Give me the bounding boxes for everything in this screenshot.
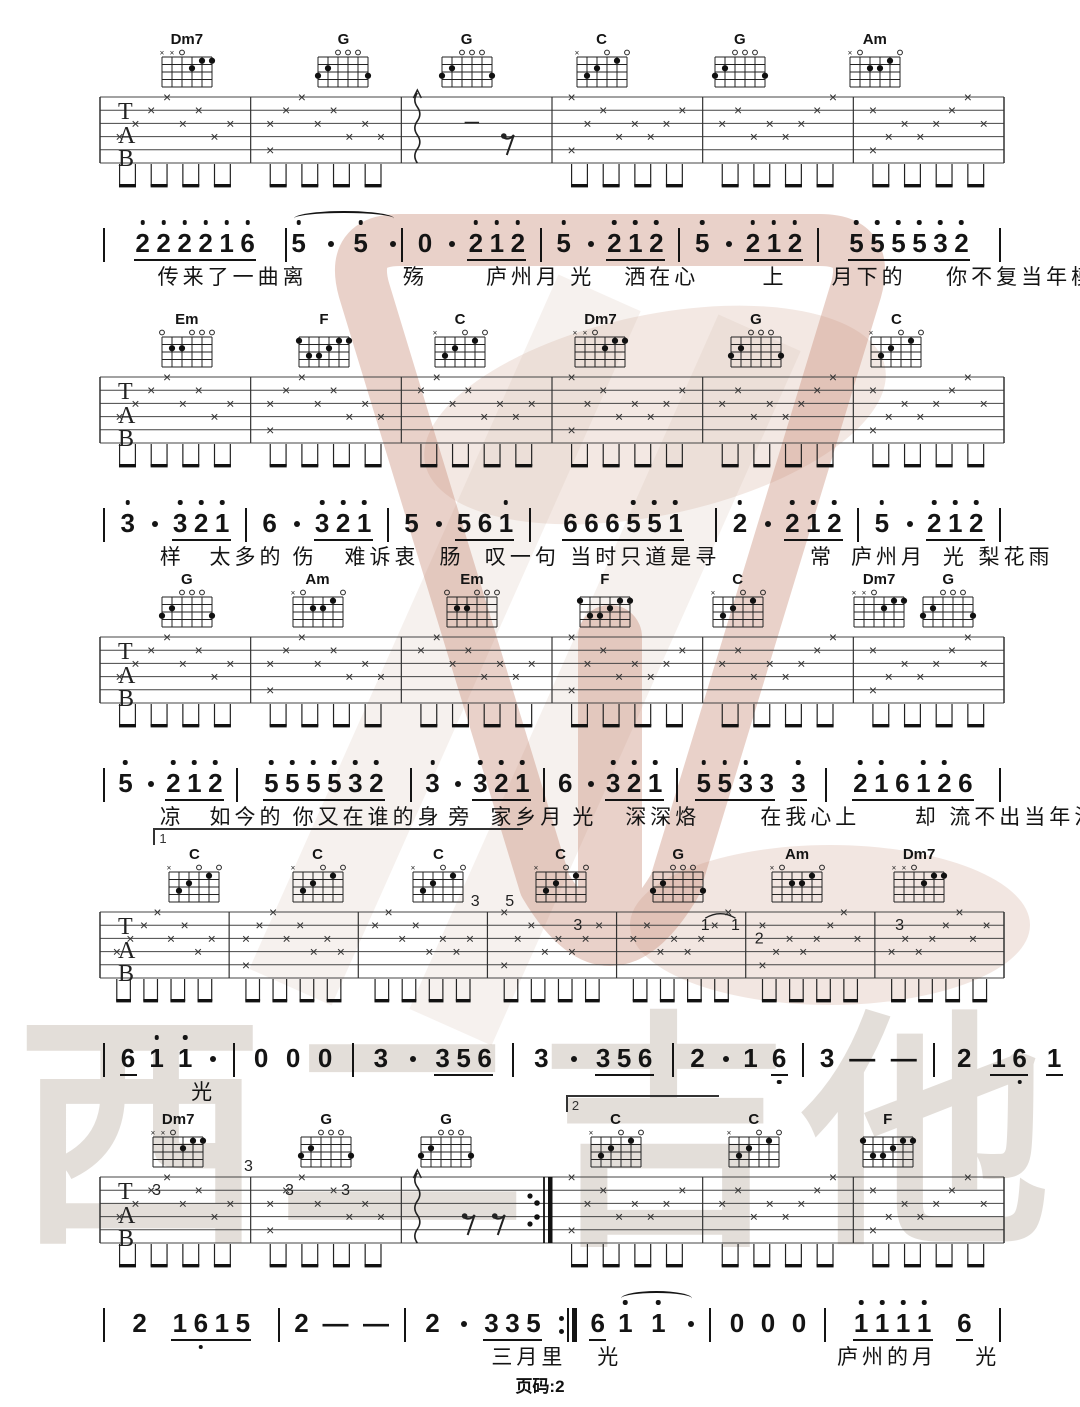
jianpu-line: 52125555323321632155333216126: [100, 754, 1004, 802]
svg-text:×: ×: [480, 409, 488, 425]
beam-group: 1: [1046, 1043, 1063, 1076]
svg-text:×: ×: [928, 930, 936, 946]
svg-text:×: ×: [266, 115, 274, 131]
jianpu-note: 2: [956, 1043, 973, 1073]
svg-text:×: ×: [131, 1195, 139, 1211]
svg-text:×: ×: [964, 89, 972, 105]
jianpu-note: 6: [957, 768, 974, 798]
jianpu-note: 2: [493, 768, 510, 798]
svg-text:×: ×: [915, 944, 923, 960]
octave-dot-high: [320, 500, 325, 505]
svg-text:×: ×: [398, 930, 406, 946]
jianpu-measure: 3321: [108, 494, 242, 541]
jianpu-measure: 666551: [534, 494, 713, 541]
jianpu-note: 6: [192, 1308, 209, 1338]
svg-text:×: ×: [163, 1169, 171, 1185]
svg-text:×: ×: [314, 655, 322, 671]
jianpu-note: 6: [771, 1043, 788, 1073]
jianpu-note: 1: [650, 1308, 667, 1338]
barline: [999, 768, 1001, 802]
svg-text:×: ×: [361, 1195, 369, 1211]
chord-name: C: [583, 1112, 649, 1128]
svg-text:×: ×: [734, 1182, 742, 1198]
chord-name: G: [154, 572, 220, 588]
barline: [543, 768, 545, 802]
svg-text:×: ×: [310, 944, 318, 960]
lyric-syllable: 旁: [448, 801, 473, 831]
svg-text:×: ×: [282, 382, 290, 398]
svg-text:B: B: [118, 1226, 134, 1252]
octave-dot-high: [631, 500, 636, 505]
svg-text:×: ×: [869, 329, 874, 338]
beam-group: 561: [455, 508, 514, 541]
jianpu-note: 2: [207, 768, 224, 798]
octave-dot-high: [632, 760, 637, 765]
augmentation-dot: [436, 521, 442, 527]
jianpu-note: 6: [604, 508, 621, 538]
svg-text:×: ×: [208, 930, 216, 946]
beam-group: 6: [956, 1308, 973, 1341]
svg-text:×: ×: [869, 1222, 877, 1238]
octave-dot-high: [942, 760, 947, 765]
jianpu-note: 5: [455, 508, 472, 538]
jianpu-note: 2: [648, 228, 665, 258]
octave-dot-high: [811, 500, 816, 505]
jianpu-note: 5: [616, 1043, 633, 1073]
chord-name: Dm7: [846, 572, 912, 588]
lyric-syllable: 三月里: [491, 1341, 566, 1371]
jianpu-dash: —: [889, 1043, 919, 1073]
svg-text:×: ×: [255, 917, 263, 933]
octave-dot-high: [938, 220, 943, 225]
svg-text:×: ×: [412, 917, 420, 933]
svg-text:×: ×: [885, 1209, 893, 1225]
lyric-syllable: 样: [160, 541, 185, 571]
octave-dot-high: [520, 760, 525, 765]
svg-text:×: ×: [464, 382, 472, 398]
octave-dot-high: [654, 220, 659, 225]
svg-text:×: ×: [496, 395, 504, 411]
jianpu-note: 2: [155, 228, 172, 258]
svg-text:×: ×: [179, 395, 187, 411]
tab-staff: TAB×××××××××××××××××××××××××××××××××××××…: [0, 882, 1080, 1014]
svg-text:×: ×: [266, 682, 274, 698]
end-repeat-barline: [559, 1308, 577, 1342]
chord-name: G: [707, 32, 773, 48]
svg-text:×: ×: [734, 642, 742, 658]
svg-text:×: ×: [766, 1195, 774, 1211]
jianpu-note: 1: [148, 1043, 165, 1073]
svg-text:×: ×: [266, 142, 274, 158]
jianpu-note: 1: [915, 768, 932, 798]
svg-text:×: ×: [282, 642, 290, 658]
barline: [245, 508, 247, 542]
svg-text:×: ×: [528, 655, 536, 671]
svg-text:×: ×: [829, 1169, 837, 1185]
augmentation-dot: [455, 781, 461, 787]
svg-text:×: ×: [853, 930, 861, 946]
jianpu-note: 0: [728, 1308, 745, 1338]
jianpu-note: 3: [372, 1043, 389, 1073]
octave-dot-high: [199, 500, 204, 505]
jianpu-note: 6: [1011, 1043, 1028, 1073]
svg-text:×: ×: [371, 917, 379, 933]
svg-text:×: ×: [226, 395, 234, 411]
jianpu-note: 2: [953, 228, 970, 258]
beam-group: 212: [165, 768, 224, 801]
chord-name: C: [705, 572, 771, 588]
octave-dot-high: [772, 220, 777, 225]
svg-text:×: ×: [115, 409, 123, 425]
jianpu-note: 3: [595, 1043, 612, 1073]
svg-text:×: ×: [678, 642, 686, 658]
jianpu-note: 5: [403, 508, 420, 538]
tie-group: 55: [290, 228, 398, 258]
repeat-dot: [559, 1316, 564, 1321]
octave-dot-high: [123, 760, 128, 765]
lyric-syllable: 家乡月: [490, 801, 565, 831]
chord-name: G: [645, 847, 711, 863]
jianpu-note: 3: [605, 768, 622, 798]
svg-text:×: ×: [678, 102, 686, 118]
lyric-syllable: 叹一句: [485, 541, 560, 571]
jianpu-dash: —: [847, 1043, 877, 1073]
augmentation-dot: [410, 1056, 416, 1062]
jianpu-measure: 555532: [822, 214, 996, 261]
beam-group: 6: [120, 1043, 137, 1076]
svg-text:×: ×: [163, 369, 171, 385]
octave-dot-high: [723, 760, 728, 765]
lyrics-line: 传来了一曲离殇庐州月光洒在心上月下的你不复当年模: [0, 261, 1080, 293]
octave-dot-high: [245, 220, 250, 225]
svg-text:×: ×: [813, 102, 821, 118]
svg-text:×: ×: [916, 1209, 924, 1225]
jianpu-measure: 000: [714, 1294, 821, 1338]
svg-text:×: ×: [131, 655, 139, 671]
svg-text:×: ×: [734, 382, 742, 398]
svg-text:×: ×: [115, 129, 123, 145]
beam-group: 212: [926, 508, 985, 541]
svg-text:×: ×: [847, 49, 852, 58]
octave-dot-high: [896, 220, 901, 225]
jianpu-line: 22221655021252125212555532: [100, 214, 1004, 262]
svg-text:×: ×: [948, 102, 956, 118]
svg-text:×: ×: [226, 1195, 234, 1211]
svg-text:1: 1: [731, 917, 740, 934]
chord-name: Am: [764, 847, 830, 863]
svg-text:×: ×: [329, 642, 337, 658]
svg-text:×: ×: [417, 642, 425, 658]
jianpu-note: 3: [758, 768, 775, 798]
svg-text:×: ×: [496, 655, 504, 671]
octave-dot-high: [140, 220, 145, 225]
chord-name: F: [855, 1112, 921, 1128]
jianpu-note: 3: [483, 1308, 500, 1338]
svg-text:×: ×: [902, 864, 907, 873]
chord-name: C: [863, 312, 929, 328]
svg-text:×: ×: [554, 930, 562, 946]
jianpu-note: 3: [504, 1308, 521, 1338]
barline: [233, 1043, 235, 1077]
barline: [678, 228, 680, 262]
svg-text:×: ×: [900, 395, 908, 411]
svg-text:×: ×: [361, 115, 369, 131]
svg-text:×: ×: [813, 1182, 821, 1198]
octave-dot-high: [203, 220, 208, 225]
jianpu-measure: 3——: [807, 1029, 930, 1073]
lyric-syllable: 庐州月: [486, 261, 561, 291]
svg-text:×: ×: [718, 655, 726, 671]
jianpu-note: 5: [716, 768, 733, 798]
jianpu-note: 1: [947, 508, 964, 538]
svg-text:×: ×: [528, 395, 536, 411]
octave-dot-high: [623, 1300, 628, 1305]
svg-text:×: ×: [885, 409, 893, 425]
augmentation-dot: [688, 1321, 694, 1327]
system-1: Dm7××GGC×GAm×TAB×××××××××××××××××–××××××…: [0, 30, 1080, 315]
barline: [512, 1043, 514, 1077]
svg-text:×: ×: [583, 329, 588, 338]
jianpu-note: 1: [514, 768, 531, 798]
svg-text:×: ×: [916, 129, 924, 145]
beam-group: 555532: [848, 228, 970, 261]
svg-text:×: ×: [126, 930, 134, 946]
jianpu-note: 5: [625, 508, 642, 538]
octave-dot-high: [854, 220, 859, 225]
svg-text:×: ×: [568, 944, 576, 960]
octave-dot-high: [652, 500, 657, 505]
lyric-syllable: 光: [572, 801, 597, 831]
barline: [857, 508, 859, 542]
jianpu-note: 3: [737, 768, 754, 798]
octave-dot-high: [702, 760, 707, 765]
octave-dot-high: [171, 760, 176, 765]
svg-text:×: ×: [599, 642, 607, 658]
jianpu-measure: 3356: [357, 1029, 509, 1076]
lyric-syllable: 光: [975, 1341, 1000, 1371]
jianpu-note: 3: [424, 768, 441, 798]
svg-text:×: ×: [948, 1182, 956, 1198]
jianpu-note: 5: [911, 228, 928, 258]
octave-dot-high: [858, 760, 863, 765]
jianpu-note: 1: [874, 1308, 891, 1338]
svg-text:×: ×: [583, 655, 591, 671]
svg-text:2: 2: [755, 930, 764, 947]
octave-dot-high: [154, 1035, 159, 1040]
octave-dot-high: [880, 1300, 885, 1305]
augmentation-dot: [723, 1056, 729, 1062]
svg-text:×: ×: [195, 102, 203, 118]
barline: [824, 1308, 826, 1342]
jianpu-note: 2: [165, 768, 182, 798]
lyric-syllable: 凉: [160, 801, 185, 831]
svg-text:×: ×: [567, 422, 575, 438]
svg-text:B: B: [118, 426, 134, 452]
svg-text:×: ×: [167, 930, 175, 946]
jianpu-note: 5: [873, 508, 890, 538]
svg-text:3: 3: [152, 1182, 161, 1199]
jianpu-note: 2: [786, 228, 803, 258]
jianpu-note: 2: [467, 228, 484, 258]
octave-dot-high: [183, 1035, 188, 1040]
jianpu-note: 5: [555, 228, 572, 258]
lyric-syllable: 庐州月: [851, 541, 926, 571]
octave-dot-high: [430, 760, 435, 765]
octave-dot-high: [516, 220, 521, 225]
svg-text:×: ×: [541, 944, 549, 960]
svg-text:×: ×: [345, 129, 353, 145]
svg-text:×: ×: [345, 1209, 353, 1225]
svg-text:×: ×: [647, 1209, 655, 1225]
octave-dot-high: [499, 760, 504, 765]
augmentation-dot: [152, 521, 158, 527]
jianpu-note: 3: [434, 1043, 451, 1073]
chord-name: C: [427, 312, 493, 328]
augmentation-dot: [907, 521, 913, 527]
svg-text:×: ×: [167, 864, 172, 873]
octave-dot-high: [859, 1300, 864, 1305]
jianpu-note: 1: [895, 1308, 912, 1338]
lyric-syllable: 传来了一曲离: [158, 261, 308, 291]
octave-dot-high: [290, 760, 295, 765]
svg-text:×: ×: [466, 930, 474, 946]
beam-group: 321: [172, 508, 231, 541]
svg-text:×: ×: [869, 1182, 877, 1198]
svg-text:×: ×: [829, 89, 837, 105]
svg-text:×: ×: [643, 917, 651, 933]
lyric-syllable: 在我心上: [760, 801, 860, 831]
svg-text:×: ×: [599, 102, 607, 118]
tab-staff: TAB×××××××××××××××××××××××××××××××××××××…: [0, 607, 1080, 739]
svg-text:3: 3: [573, 917, 582, 934]
jianpu-note: 1: [667, 508, 684, 538]
lyric-syllable: 太多的: [210, 541, 285, 571]
svg-text:×: ×: [290, 864, 295, 873]
svg-text:×: ×: [631, 655, 639, 671]
svg-text:1: 1: [701, 917, 710, 934]
jianpu-note: 0: [417, 228, 434, 258]
jianpu-note: 5: [848, 228, 865, 258]
svg-text:×: ×: [147, 102, 155, 118]
augmentation-dot: [148, 781, 154, 787]
svg-text:×: ×: [829, 369, 837, 385]
svg-text:×: ×: [131, 395, 139, 411]
barline: [529, 508, 531, 542]
svg-text:×: ×: [314, 395, 322, 411]
lyric-syllable: 光: [191, 1076, 216, 1106]
svg-text:3: 3: [895, 917, 904, 934]
svg-text:×: ×: [345, 409, 353, 425]
jianpu-dash: —: [320, 1308, 350, 1338]
jianpu-note: 1: [497, 508, 514, 538]
lyric-syllable: 你不复当年模: [946, 261, 1080, 291]
barline: [285, 228, 287, 262]
jianpu-dash: —: [361, 1308, 391, 1338]
lyric-syllable: 光: [570, 261, 595, 291]
svg-text:×: ×: [194, 944, 202, 960]
svg-text:×: ×: [770, 864, 775, 873]
octave-dot-high: [796, 760, 801, 765]
jianpu-measure: 6321: [548, 754, 673, 801]
svg-text:×: ×: [869, 422, 877, 438]
svg-text:×: ×: [840, 904, 848, 920]
chord-name: G: [723, 312, 789, 328]
svg-text:×: ×: [433, 369, 441, 385]
jianpu-note: 1: [627, 228, 644, 258]
octave-dot-high: [362, 500, 367, 505]
lyric-syllable: 你又在谁的身: [293, 801, 443, 831]
svg-text:B: B: [118, 961, 134, 987]
augmentation-dot: [571, 1056, 577, 1062]
svg-text:×: ×: [885, 669, 893, 685]
lyric-syllable: 难诉衷: [345, 541, 420, 571]
svg-text:×: ×: [533, 864, 538, 873]
lyric-syllable: 当时只道是寻: [570, 541, 720, 571]
chord-name: Dm7: [145, 1112, 211, 1128]
svg-text:×: ×: [813, 642, 821, 658]
jianpu-note: 2: [744, 228, 761, 258]
svg-text:×: ×: [314, 115, 322, 131]
barline: [825, 768, 827, 802]
system-5: Dm7××GGC×C×FTAB×××××××××××××××××××××××××…: [0, 1110, 1080, 1395]
chord-name: Am: [842, 32, 908, 48]
svg-text:×: ×: [955, 904, 963, 920]
beam-group: 6: [589, 1308, 606, 1341]
jianpu-note: 1: [916, 1308, 933, 1338]
svg-text:×: ×: [385, 904, 393, 920]
octave-dot-high: [922, 1300, 927, 1305]
svg-text:×: ×: [439, 930, 447, 946]
octave-dot-high: [901, 1300, 906, 1305]
lyric-syllable: 庐州的月: [837, 1341, 937, 1371]
barline: [387, 508, 389, 542]
chord-name: F: [572, 572, 638, 588]
octave-dot-high: [341, 500, 346, 505]
jianpu-note: 0: [790, 1308, 807, 1338]
jianpu-note: 2: [424, 1308, 441, 1338]
jianpu-note: 2: [197, 228, 214, 258]
jianpu-note: 5: [284, 768, 301, 798]
svg-text:×: ×: [916, 409, 924, 425]
octave-dot-high: [495, 220, 500, 225]
jianpu-note: 1: [214, 508, 231, 538]
octave-dot-high: [358, 220, 363, 225]
svg-text:×: ×: [684, 944, 692, 960]
jianpu-measure: 0212: [406, 214, 537, 261]
svg-text:×: ×: [159, 49, 164, 58]
jianpu-note: 3: [472, 768, 489, 798]
jianpu-note: 2: [731, 508, 748, 538]
svg-text:×: ×: [670, 930, 678, 946]
beam-group: 1111: [853, 1308, 933, 1341]
svg-text:×: ×: [163, 89, 171, 105]
jianpu-measure: 2212: [720, 494, 854, 541]
chord-name: G: [915, 572, 981, 588]
svg-text:×: ×: [298, 1169, 306, 1185]
octave-dot-high: [220, 500, 225, 505]
augmentation-dot: [390, 241, 396, 247]
svg-text:×: ×: [377, 1209, 385, 1225]
octave-dot-high: [611, 760, 616, 765]
barline: [999, 1308, 1001, 1342]
svg-text:×: ×: [329, 382, 337, 398]
chord-name: G: [293, 1112, 359, 1128]
thick-bar: [572, 1308, 577, 1342]
jianpu-note: 6: [476, 1043, 493, 1073]
chord-name: C: [528, 847, 594, 863]
jianpu-note: 2: [368, 768, 385, 798]
chord-name: C: [161, 847, 227, 863]
